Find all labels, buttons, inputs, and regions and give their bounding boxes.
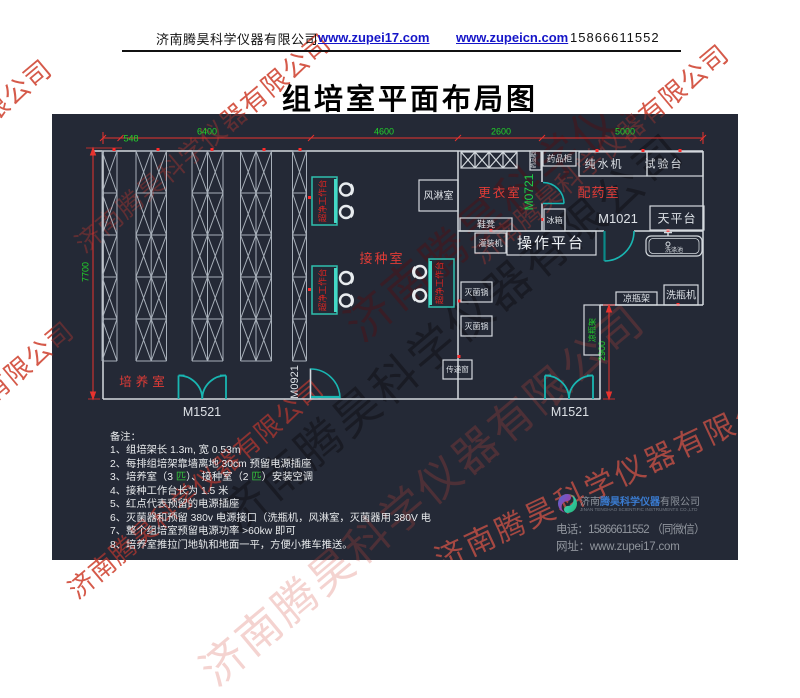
svg-text:鞋凳: 鞋凳 — [477, 219, 495, 230]
svg-text:M0721: M0721 — [522, 173, 536, 210]
svg-text:凉瓶架: 凉瓶架 — [587, 318, 597, 342]
svg-text:更衣室: 更衣室 — [478, 185, 522, 200]
svg-text:超净工作台: 超净工作台 — [318, 180, 328, 223]
svg-text:冰箱: 冰箱 — [547, 215, 563, 225]
svg-text:接种室: 接种室 — [359, 251, 404, 266]
svg-text:操作平台: 操作平台 — [517, 235, 585, 252]
svg-text:M1021: M1021 — [598, 211, 638, 226]
svg-text:凉瓶架: 凉瓶架 — [623, 293, 650, 304]
svg-text:4600: 4600 — [374, 127, 394, 137]
svg-text:灌装机: 灌装机 — [479, 238, 503, 248]
svg-text:2600: 2600 — [491, 127, 511, 137]
svg-text:试验台: 试验台 — [645, 157, 684, 171]
svg-text:洗瓶机: 洗瓶机 — [666, 289, 696, 302]
svg-text:药品柜: 药品柜 — [530, 151, 538, 168]
svg-text:配药室: 配药室 — [577, 185, 619, 200]
svg-text:灭菌锅: 灭菌锅 — [465, 287, 489, 297]
svg-text:M1521: M1521 — [183, 405, 221, 419]
svg-text:培养室: 培养室 — [119, 374, 169, 389]
svg-text:药品柜: 药品柜 — [547, 154, 573, 164]
svg-text:洗涤池: 洗涤池 — [665, 246, 683, 254]
svg-text:风淋室: 风淋室 — [424, 189, 454, 202]
svg-text:2900: 2900 — [597, 341, 607, 361]
svg-text:6400: 6400 — [197, 127, 217, 137]
svg-text:传递窗: 传递窗 — [446, 364, 469, 374]
svg-text:灭菌锅: 灭菌锅 — [465, 321, 489, 331]
svg-text:天平台: 天平台 — [657, 210, 696, 225]
svg-text:548: 548 — [123, 134, 138, 144]
svg-text:纯水机: 纯水机 — [585, 157, 624, 171]
svg-text:超净工作台: 超净工作台 — [318, 269, 328, 312]
svg-text:超净工作台: 超净工作台 — [435, 262, 445, 305]
svg-text:7700: 7700 — [81, 262, 91, 282]
svg-text:M0921: M0921 — [289, 365, 301, 399]
svg-text:5000: 5000 — [615, 127, 635, 137]
svg-text:M1521: M1521 — [551, 405, 589, 419]
